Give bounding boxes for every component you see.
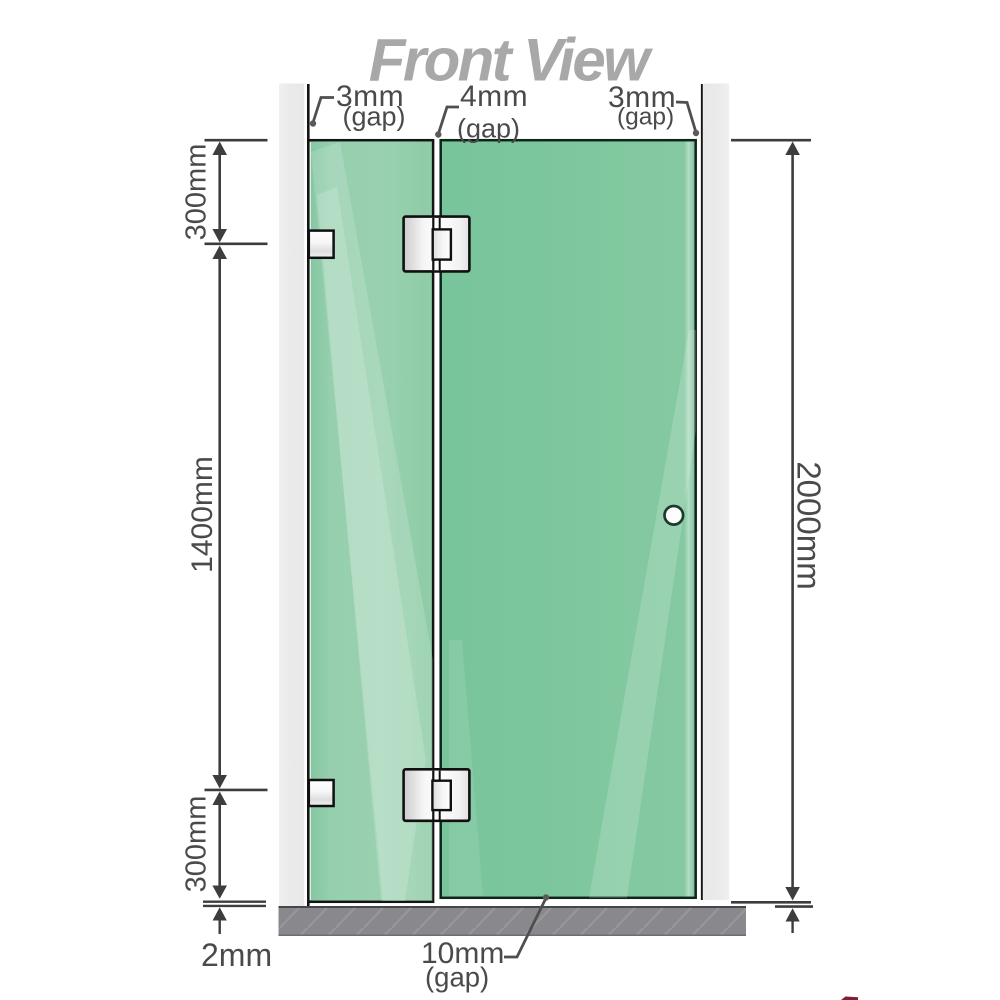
svg-text:1400mm: 1400mm [186, 456, 219, 573]
svg-text:(gap): (gap) [457, 114, 520, 144]
svg-text:300mm: 300mm [181, 144, 213, 241]
svg-text:4mm: 4mm [460, 80, 528, 113]
svg-text:2mm: 2mm [201, 937, 272, 973]
svg-text:(gap): (gap) [343, 102, 406, 132]
svg-text:(gap): (gap) [425, 962, 489, 993]
svg-text:(gap): (gap) [617, 104, 674, 131]
svg-text:2000mm: 2000mm [791, 461, 828, 589]
svg-text:300mm: 300mm [181, 796, 213, 893]
